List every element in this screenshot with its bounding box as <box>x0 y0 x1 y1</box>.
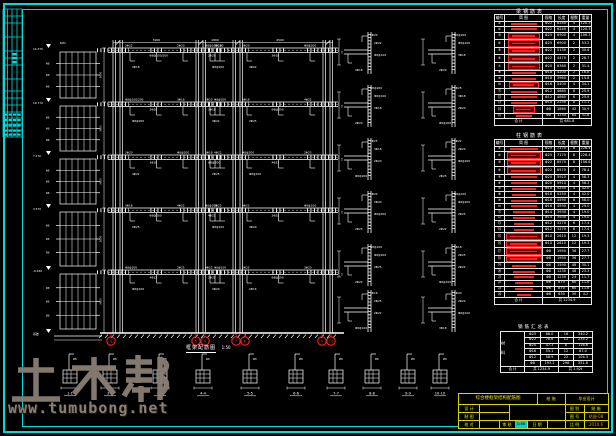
rebar-table2-title: 柱钢筋表 <box>516 132 544 139</box>
rebar-cell: 7170 <box>555 152 569 160</box>
rebar-cell: 8 <box>569 159 580 167</box>
rebar-cell: ⑥ <box>495 55 505 63</box>
rebar-shape <box>508 63 540 70</box>
svg-text:3Φ18: 3Φ18 <box>214 44 222 48</box>
table-footer-cell: 合 计 <box>495 119 543 126</box>
svg-text:2Φ25: 2Φ25 <box>242 266 250 270</box>
svg-text:2Φ25: 2Φ25 <box>249 119 257 123</box>
svg-text:4Φ22: 4Φ22 <box>208 214 216 218</box>
svg-text:Φ8: Φ8 <box>46 116 50 119</box>
svg-text:Φ8: Φ8 <box>46 314 50 317</box>
rebar-cell: ⑭ <box>495 106 505 114</box>
svg-text:3900: 3900 <box>153 38 161 42</box>
svg-text:2Φ25: 2Φ25 <box>355 227 363 231</box>
rebar-cell: 26.7 <box>580 55 592 63</box>
svg-text:Φ8@200: Φ8@200 <box>370 86 382 90</box>
svg-text:2Φ25: 2Φ25 <box>458 212 466 216</box>
rebar-shape <box>506 233 542 240</box>
svg-text:4: 4 <box>110 340 112 344</box>
rebar-row: ③Φ2265708156.8 <box>495 159 592 167</box>
titleblock-sheet-type-value: 结 施 <box>584 405 608 413</box>
titleblock-sheet-type-label: 图 别 <box>565 405 585 413</box>
svg-text:Φ8@200: Φ8@200 <box>242 151 254 155</box>
rebar-row: ⑥Φ224470226.7 <box>495 55 592 63</box>
svg-text:Φ8: Φ8 <box>339 357 343 361</box>
svg-text:2Φ16: 2Φ16 <box>249 287 257 291</box>
svg-text:4-4: 4-4 <box>200 392 207 396</box>
rebar-cell: ② <box>495 152 505 160</box>
elevation-caption-scale: 1:50 <box>222 345 231 350</box>
svg-text:3Φ18: 3Φ18 <box>458 94 466 98</box>
rebar-cell: 36 <box>569 248 580 256</box>
svg-text:2Φ25: 2Φ25 <box>374 299 382 303</box>
frame-elevation: 390018004500KZ12Φ22Φ8@100/2002Φ203Φ18Φ8@… <box>60 38 344 338</box>
rebar-cell: Φ8 <box>543 106 555 114</box>
svg-text:Φ8@200: Φ8@200 <box>458 200 470 204</box>
rebar-cell: 5130 <box>555 47 569 55</box>
rebar-row: ⑭Φ818604230.9 <box>495 106 592 114</box>
rebar-cell <box>505 55 543 63</box>
svg-text:4Φ22: 4Φ22 <box>272 161 280 165</box>
svg-text:Φ8: Φ8 <box>443 357 447 361</box>
rebar-table-1: 编号简 图规格长度根数重量①Φ2262404120.3②Φ2262404120.… <box>494 14 592 126</box>
titleblock-drawing-title: 综合楼框架结构配筋图 <box>459 394 538 405</box>
rebar-shape <box>513 106 535 113</box>
svg-text:基础: 基础 <box>33 332 39 336</box>
rebar-cell: 2610 <box>555 233 569 241</box>
summary-footer-cell: 合 计 <box>501 366 525 373</box>
rebar-cell: 2610 <box>555 240 569 248</box>
rebar-row: ⑮Φ1026101219.3 <box>495 233 592 241</box>
svg-text:4Φ22: 4Φ22 <box>214 151 222 155</box>
svg-text:3Φ18: 3Φ18 <box>355 68 363 72</box>
svg-text:2Φ25: 2Φ25 <box>132 225 140 229</box>
titleblock-scale-label: 比 例 <box>565 421 585 429</box>
rebar-cell <box>505 167 543 175</box>
svg-text:2Φ25: 2Φ25 <box>304 151 312 155</box>
svg-text:6-6: 6-6 <box>293 392 300 396</box>
table-footer-cell: 合 计 <box>495 298 543 305</box>
svg-text:2Φ20: 2Φ20 <box>205 98 213 102</box>
rebar-cell: 6570 <box>555 159 569 167</box>
svg-text:Φ8: Φ8 <box>46 252 50 255</box>
rebar-cell: 31.4 <box>580 63 592 71</box>
table-footer-row: 合 计共 1234.9 <box>495 298 592 305</box>
svg-text:Φ8@200: Φ8@200 <box>150 214 162 218</box>
svg-text:Φ8: Φ8 <box>46 287 50 290</box>
titleblock-draw-label: 制 图 <box>459 413 480 421</box>
rebar-cell <box>505 248 543 256</box>
rebar-shape <box>515 288 533 290</box>
titleblock-cell <box>479 405 510 413</box>
svg-text:2Φ25: 2Φ25 <box>439 174 447 178</box>
table-footer-cell: 共 1234.9 <box>543 298 592 305</box>
svg-text:2Φ20: 2Φ20 <box>150 108 158 112</box>
svg-text:KZ1: KZ1 <box>60 41 66 45</box>
svg-text:5: 5 <box>195 340 197 344</box>
rebar-cell: Φ8 <box>543 255 555 263</box>
rebar-cell: 27.7 <box>580 255 592 263</box>
svg-text:2Φ25: 2Φ25 <box>272 214 280 218</box>
rebar-shape <box>507 160 541 167</box>
svg-text:Φ8: Φ8 <box>46 128 50 131</box>
rebar-row: ⑰Φ819503627.7 <box>495 248 592 256</box>
svg-text:10: 10 <box>329 340 333 344</box>
rebar-cell: ⑩ <box>495 81 505 89</box>
rebar-cell: 27.7 <box>580 248 592 256</box>
titleblock-doc-type: 结 施 <box>537 394 566 405</box>
rebar-cell <box>505 159 543 167</box>
svg-text:Φ8@100: Φ8@100 <box>374 94 386 98</box>
svg-text:T: T <box>340 211 343 215</box>
titleblock-review-label: 校 对 <box>459 421 480 429</box>
svg-text:2Φ22: 2Φ22 <box>125 44 133 48</box>
rebar-row: ⑯Φ1026101219.3 <box>495 240 592 248</box>
rebar-cell: Φ8 <box>543 248 555 256</box>
svg-text:3Φ18: 3Φ18 <box>454 245 462 249</box>
rebar-shape <box>511 28 537 30</box>
summary-footer-cell: 共 1.92t <box>559 366 593 373</box>
rebar-cell <box>505 63 543 71</box>
svg-text:2Φ25: 2Φ25 <box>458 253 466 257</box>
rebar-cell: 12 <box>569 240 580 248</box>
svg-text:3Φ18: 3Φ18 <box>370 291 378 295</box>
rebar-row: ⑩Φ165400434.1 <box>495 81 592 89</box>
rebar-cell: Φ10 <box>543 240 555 248</box>
svg-text:3Φ18: 3Φ18 <box>458 53 466 57</box>
svg-text:4Φ22: 4Φ22 <box>249 65 257 69</box>
rebar-row: ④Φ226570478.4 <box>495 167 592 175</box>
rebar-cell: 1950 <box>555 248 569 256</box>
svg-text:Φ8: Φ8 <box>299 357 303 361</box>
svg-text:2Φ25: 2Φ25 <box>177 266 185 270</box>
rebar-shape <box>516 115 532 117</box>
rebar-cell: 4 <box>569 81 580 89</box>
rebar-cell: 156.8 <box>580 159 592 167</box>
rebar-cell: Φ25 <box>543 152 555 160</box>
svg-text:Φ8@100: Φ8@100 <box>249 172 261 176</box>
rebar-shape <box>513 271 535 273</box>
rebar-shape <box>508 40 540 47</box>
titleblock-check-label: 审 核 <box>499 421 516 429</box>
svg-text:Φ8@100: Φ8@100 <box>212 225 224 229</box>
svg-text:6: 6 <box>204 340 206 344</box>
column-ladder-detail: Φ8Φ8Φ8Φ8Φ8Φ8Φ8Φ8Φ8Φ8Φ8Φ8Φ8Φ8Φ814.37010.7… <box>33 44 102 340</box>
rebar-cell: 53.2 <box>580 40 592 48</box>
svg-text:Φ8@200: Φ8@200 <box>304 44 316 48</box>
rebar-cell: 4 <box>569 32 580 40</box>
rebar-shape <box>517 294 531 296</box>
svg-text:10-10: 10-10 <box>435 392 446 396</box>
rebar-shape <box>511 23 537 25</box>
rebar-cell: 42 <box>569 106 580 114</box>
svg-text:Φ8@200: Φ8@200 <box>272 108 284 112</box>
rebar-row: ④Φ256900253.2 <box>495 40 592 48</box>
svg-text:Φ8: Φ8 <box>253 357 257 361</box>
rebar-cell: Φ22 <box>543 159 555 167</box>
rebar-cell <box>505 233 543 241</box>
node-details: 2Φ22Φ8@1003Φ182Φ20Φ8@1003Φ182Φ20Φ8@2003Φ… <box>337 32 470 332</box>
svg-text:4Φ22: 4Φ22 <box>205 266 213 270</box>
svg-text:Φ8: Φ8 <box>46 139 50 142</box>
svg-text:4Φ22: 4Φ22 <box>304 98 312 102</box>
rebar-shape <box>514 276 534 278</box>
svg-text:2Φ20: 2Φ20 <box>208 54 216 58</box>
rebar-shape <box>511 176 537 178</box>
rebar-shape <box>513 211 535 213</box>
rebar-cell: ⑰ <box>495 248 505 256</box>
svg-text:2Φ22: 2Φ22 <box>458 299 466 303</box>
summary-table: 材 料Φ2586.016340.2Φ2278.812235.2Φ2047.381… <box>500 331 593 373</box>
titleblock-name-area <box>509 405 566 421</box>
svg-text:7.170: 7.170 <box>33 154 41 158</box>
table-footer-row: 合 计共 681.8 <box>495 119 592 126</box>
rebar-shape <box>515 282 533 284</box>
svg-text:Φ8: Φ8 <box>206 357 210 361</box>
svg-text:2Φ22: 2Φ22 <box>374 311 382 315</box>
svg-text:2Φ25: 2Φ25 <box>370 139 378 143</box>
rebar-shape <box>508 48 540 55</box>
svg-text:Φ8@100: Φ8@100 <box>458 41 470 45</box>
titleblock-date-label: 日 期 <box>527 421 548 429</box>
rebar-shape <box>511 91 537 93</box>
svg-text:Φ8@200: Φ8@200 <box>374 212 386 216</box>
svg-text:2Φ25: 2Φ25 <box>212 172 220 176</box>
rebar-cell: Φ25 <box>543 32 555 40</box>
svg-text:3Φ18: 3Φ18 <box>208 108 216 112</box>
rebar-cell: ⑤ <box>495 47 505 55</box>
rebar-shape <box>512 265 536 267</box>
svg-text:4Φ22: 4Φ22 <box>150 276 158 280</box>
svg-text:T: T <box>340 158 343 162</box>
table-footer-cell: 共 681.8 <box>543 119 592 126</box>
svg-text:Φ8: Φ8 <box>46 63 50 66</box>
svg-text:Φ8@100: Φ8@100 <box>355 326 367 330</box>
rebar-shape <box>512 188 536 190</box>
svg-text:2Φ22: 2Φ22 <box>439 227 447 231</box>
title-block: 综合楼框架结构配筋图结 施毕业设计设 计图 别结 施制 图图 号结施-08校 对… <box>458 393 609 429</box>
rebar-cell <box>505 40 543 48</box>
rebar-shape <box>511 200 537 202</box>
rebar-shape <box>510 148 538 150</box>
rebar-cell: Φ10 <box>543 233 555 241</box>
svg-text:2Φ25: 2Φ25 <box>214 204 222 208</box>
rebar-cell: 6900 <box>555 32 569 40</box>
svg-text:2Φ20: 2Φ20 <box>458 106 466 110</box>
svg-text:3Φ20: 3Φ20 <box>249 225 257 229</box>
rebar-cell <box>505 106 543 114</box>
svg-text:2Φ22: 2Φ22 <box>458 265 466 269</box>
rebar-shape <box>508 55 540 62</box>
rebar-shape <box>514 223 534 225</box>
svg-text:Φ8: Φ8 <box>46 238 50 241</box>
svg-text:8-8: 8-8 <box>369 392 376 396</box>
svg-text:T: T <box>340 105 343 109</box>
svg-text:2Φ20: 2Φ20 <box>454 291 462 295</box>
svg-text:2Φ22: 2Φ22 <box>454 139 462 143</box>
svg-text:Φ8: Φ8 <box>46 301 50 304</box>
rebar-shape <box>511 96 537 98</box>
rebar-shape <box>514 229 534 231</box>
svg-text:2Φ20: 2Φ20 <box>374 159 382 163</box>
titleblock-cell <box>547 421 566 429</box>
svg-text:2Φ22: 2Φ22 <box>370 192 378 196</box>
rebar-cell: 30.9 <box>580 106 592 114</box>
cad-drawing-page: 390018004500KZ12Φ22Φ8@100/2002Φ203Φ18Φ8@… <box>0 0 616 436</box>
titleblock-cell <box>479 413 510 421</box>
svg-text:3Φ18: 3Φ18 <box>374 147 382 151</box>
svg-text:2Φ22: 2Φ22 <box>355 280 363 284</box>
rebar-cell: 6900 <box>555 40 569 48</box>
rebar-cell <box>505 47 543 55</box>
svg-text:1800: 1800 <box>211 38 219 42</box>
rebar-cell: Φ22 <box>543 55 555 63</box>
rebar-cell: 106.3 <box>580 32 592 40</box>
svg-text:2Φ20: 2Φ20 <box>374 200 382 204</box>
svg-text:Φ8@100: Φ8@100 <box>458 311 470 315</box>
svg-text:Φ8: Φ8 <box>46 225 50 228</box>
svg-text:Φ8@200: Φ8@200 <box>132 119 144 123</box>
rebar-cell: 12 <box>569 233 580 241</box>
svg-text:2Φ20: 2Φ20 <box>177 44 185 48</box>
rebar-shape <box>512 72 536 74</box>
svg-text:-0.030: -0.030 <box>33 269 42 273</box>
watermark-url: www.tumubong.net <box>8 399 169 417</box>
svg-text:Φ8@100: Φ8@100 <box>374 53 386 57</box>
rebar-row: ②Φ2571708226.4 <box>495 152 592 160</box>
svg-text:Φ8@200: Φ8@200 <box>454 33 466 37</box>
svg-text:Φ8@200: Φ8@200 <box>125 266 137 270</box>
elevation-caption-text: 框架配筋图 <box>186 345 216 353</box>
svg-text:8: 8 <box>244 340 246 344</box>
rebar-cell: Φ22 <box>543 167 555 175</box>
rebar-shape <box>506 256 542 263</box>
rebar-cell: 4470 <box>555 55 569 63</box>
svg-text:4Φ22: 4Φ22 <box>132 172 140 176</box>
rebar-row: ③Φ2569004106.3 <box>495 32 592 40</box>
titleblock-project: 毕业设计 <box>565 394 608 405</box>
svg-text:Φ8: Φ8 <box>46 74 50 77</box>
rebar-cell: ⑯ <box>495 240 505 248</box>
rebar-table-2: 编号简 图规格长度根数重量①Φ2571708226.4②Φ2571708226.… <box>494 139 592 305</box>
svg-text:2Φ20: 2Φ20 <box>242 44 250 48</box>
svg-text:3Φ20: 3Φ20 <box>212 287 220 291</box>
svg-text:2Φ22: 2Φ22 <box>374 41 382 45</box>
svg-text:Φ8@100: Φ8@100 <box>454 192 466 196</box>
svg-text:Φ8@100: Φ8@100 <box>272 276 284 280</box>
rebar-cell: 2 <box>569 47 580 55</box>
rebar-cell: 1950 <box>555 255 569 263</box>
svg-text:4Φ22: 4Φ22 <box>212 119 220 123</box>
svg-text:5-5: 5-5 <box>247 392 253 396</box>
svg-text:Φ8@100/200: Φ8@100/200 <box>150 54 169 58</box>
svg-text:7: 7 <box>235 340 237 344</box>
rebar-cell: 30.6 <box>580 47 592 55</box>
rebar-cell: Φ16 <box>543 81 555 89</box>
svg-text:Φ8@100: Φ8@100 <box>439 280 451 284</box>
titleblock-cell <box>479 421 500 429</box>
rebar-shape <box>512 78 536 80</box>
summary-side-cell: 材 料 <box>501 332 525 367</box>
summary-footer-cell: 共 1234.9 <box>525 366 559 373</box>
rebar-shape <box>512 194 536 196</box>
titleblock-date-value: 2010.6 <box>584 421 608 429</box>
rebar-cell: ③ <box>495 159 505 167</box>
svg-text:4Φ22: 4Φ22 <box>177 204 185 208</box>
rebar-cell: 2 <box>569 55 580 63</box>
svg-text:Φ8: Φ8 <box>46 181 50 184</box>
svg-text:Φ8@200: Φ8@200 <box>208 161 220 165</box>
rebar-cell: ⑱ <box>495 255 505 263</box>
elevation-caption: 框架配筋图 1:50 <box>186 344 231 351</box>
signoff-strip <box>3 9 22 137</box>
rebar-cell: ⑮ <box>495 233 505 241</box>
svg-text:2Φ25: 2Φ25 <box>374 265 382 269</box>
svg-text:10.770: 10.770 <box>33 101 43 105</box>
svg-text:Φ8: Φ8 <box>375 357 379 361</box>
rebar-shape <box>513 217 535 219</box>
svg-text:3Φ18: 3Φ18 <box>205 151 213 155</box>
svg-text:Φ8@100: Φ8@100 <box>370 245 382 249</box>
rebar-cell: 36 <box>569 255 580 263</box>
rebar-cell: 8 <box>569 152 580 160</box>
svg-text:2Φ25: 2Φ25 <box>454 86 462 90</box>
rebar-cell: 78.4 <box>580 167 592 175</box>
rebar-cell <box>505 255 543 263</box>
svg-text:3Φ18: 3Φ18 <box>272 54 280 58</box>
rebar-shape <box>511 102 537 104</box>
svg-text:7-7: 7-7 <box>333 392 339 396</box>
rebar-shape <box>506 241 542 248</box>
rebar-cell: Φ25 <box>543 40 555 48</box>
svg-text:3Φ18: 3Φ18 <box>150 161 158 165</box>
svg-text:4Φ22: 4Φ22 <box>242 204 250 208</box>
svg-text:Φ8@100: Φ8@100 <box>214 266 226 270</box>
rebar-cell: 6360 <box>555 63 569 71</box>
titleblock-sheet-no-label: 图 号 <box>565 413 585 421</box>
rebar-cell: 19.3 <box>580 240 592 248</box>
svg-text:Φ8: Φ8 <box>46 169 50 172</box>
svg-text:Φ8@200: Φ8@200 <box>212 65 224 69</box>
svg-text:2Φ20: 2Φ20 <box>370 33 378 37</box>
rebar-cell: Φ22 <box>543 47 555 55</box>
titleblock-sheet-no-value: 结施-08 <box>584 413 608 421</box>
rebar-cell: ⑦ <box>495 63 505 71</box>
svg-text:Φ8@100: Φ8@100 <box>132 287 144 291</box>
rebar-cell: 34.1 <box>580 81 592 89</box>
rebar-shape <box>508 33 540 40</box>
rebar-cell <box>505 81 543 89</box>
rebar-cell <box>505 32 543 40</box>
rebar-cell <box>505 240 543 248</box>
rebar-row: ⑦Φ206360231.4 <box>495 63 592 71</box>
svg-text:3Φ18: 3Φ18 <box>177 98 185 102</box>
svg-text:3.570: 3.570 <box>33 207 41 211</box>
svg-text:Φ8@200: Φ8@200 <box>458 159 470 163</box>
svg-text:Φ8: Φ8 <box>411 357 415 361</box>
svg-text:Φ8@100/200: Φ8@100/200 <box>125 98 144 102</box>
rebar-shape <box>506 248 542 255</box>
svg-text:Φ8@100: Φ8@100 <box>304 204 316 208</box>
svg-text:T: T <box>340 51 343 55</box>
svg-text:Φ8@200: Φ8@200 <box>214 98 226 102</box>
svg-text:2Φ25: 2Φ25 <box>208 276 216 280</box>
rebar-cell: 19.3 <box>580 233 592 241</box>
rebar-cell: ④ <box>495 40 505 48</box>
rebar-cell: 6570 <box>555 167 569 175</box>
svg-text:3Φ18: 3Φ18 <box>125 204 133 208</box>
svg-text:9: 9 <box>321 340 323 344</box>
